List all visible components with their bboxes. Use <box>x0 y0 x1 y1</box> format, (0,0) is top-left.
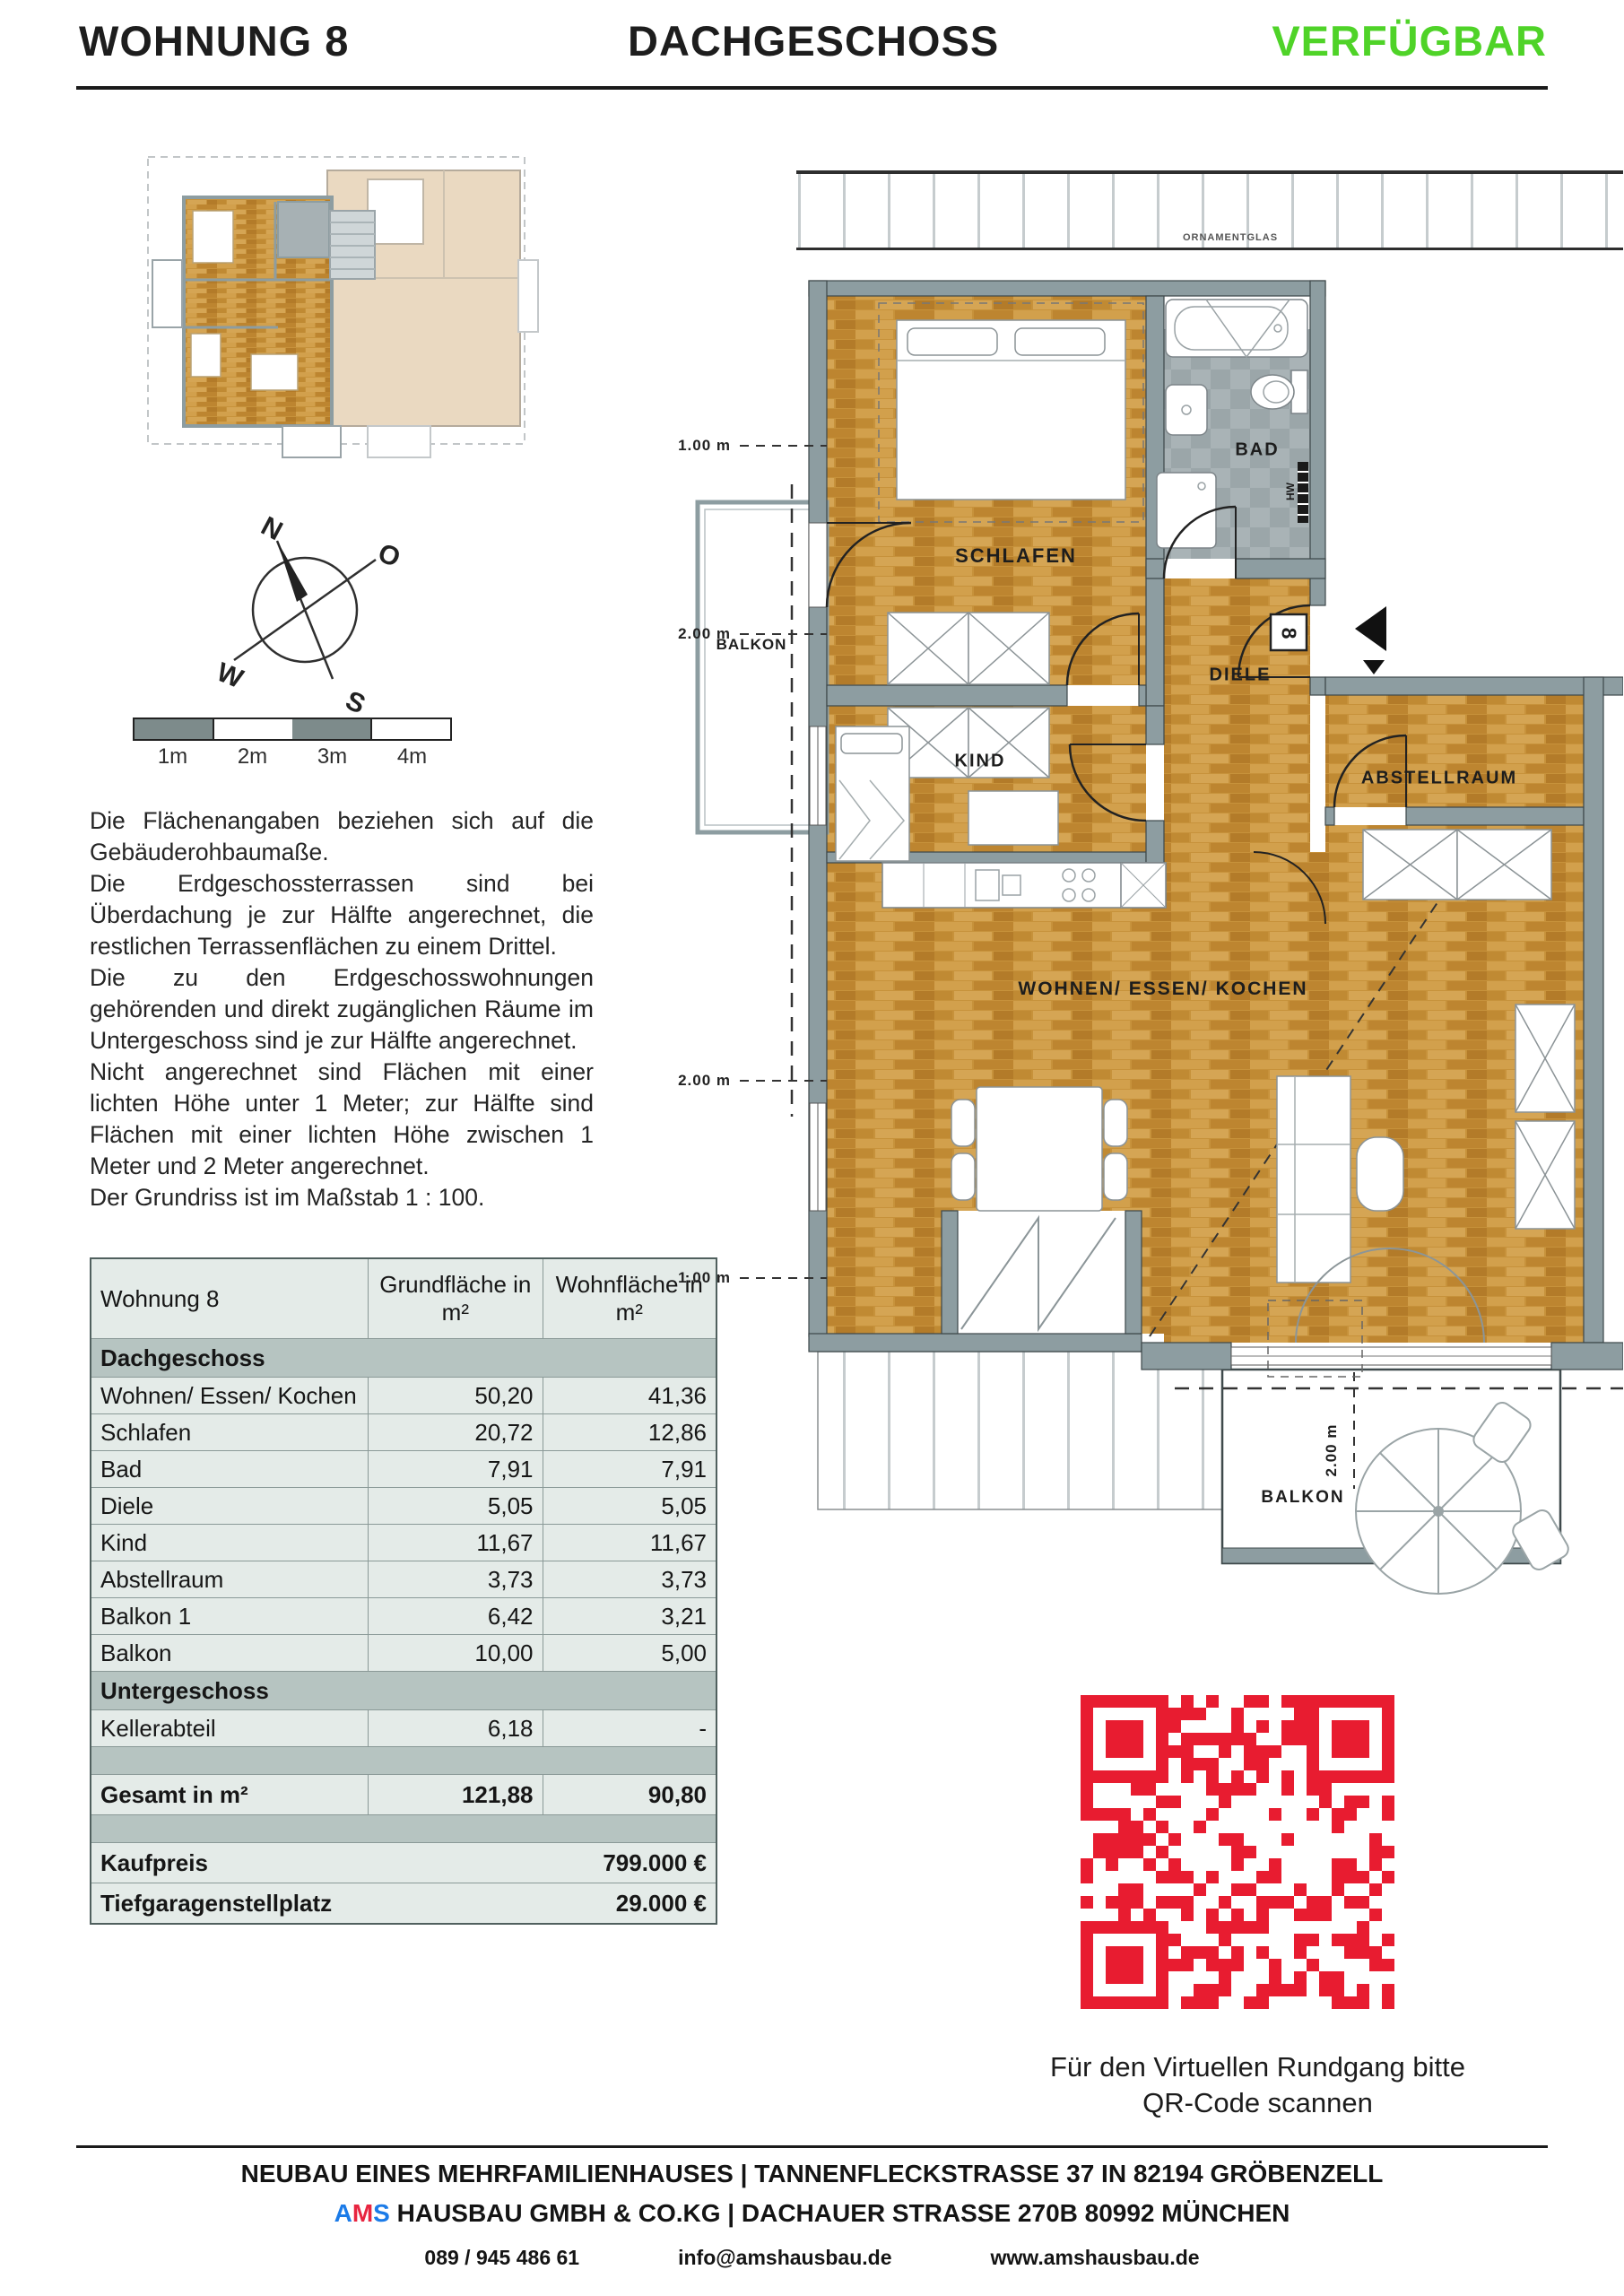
label-hw: HW <box>1284 483 1297 500</box>
dim-1m-bottom: 1.00 m <box>678 1269 731 1287</box>
brochure-page: WOHNUNG 8 DACHGESCHOSS VERFÜGBAR <box>0 0 1624 2296</box>
price-label: Kaufpreis <box>100 1849 208 1877</box>
compass-drawing <box>215 498 404 722</box>
footer-project-line: NEUBAU EINES MEHRFAMILIENHAUSES | TANNEN… <box>0 2160 1624 2188</box>
header-divider <box>76 86 1548 90</box>
scale-label-1m: 1m <box>133 744 213 770</box>
kid-desk <box>968 791 1058 845</box>
page-title: WOHNUNG 8 <box>79 16 349 65</box>
dim-2m-top: 2.00 m <box>678 625 731 643</box>
qr-code <box>1081 1695 1403 2018</box>
kitchen-counter <box>882 863 1166 908</box>
footer-company-line: AMS HAUSBAU GMBH & CO.KG | DACHAUER STRA… <box>0 2199 1624 2228</box>
ams-logo-a: A <box>334 2199 352 2227</box>
overview-balcony <box>152 260 182 327</box>
dining-set <box>951 1087 1127 1211</box>
scale-seg-4 <box>370 719 450 739</box>
status-badge: VERFÜGBAR <box>1272 16 1547 65</box>
scale-bar-labels: 1m 2m 3m 4m <box>133 744 452 770</box>
compass-rose: N O W S <box>215 498 404 722</box>
room-label-abstellraum: ABSTELLRAUM <box>1361 769 1517 789</box>
table-header-grundflaeche: Grundfläche in m² <box>369 1258 543 1339</box>
qr-caption: Für den Virtuellen Rundgang bitte QR-Cod… <box>937 2049 1578 2121</box>
kid-bed <box>836 726 909 861</box>
room-label-wohnen: WOHNEN/ ESSEN/ KOCHEN <box>1018 978 1307 1000</box>
table-header-apartment: Wohnung 8 <box>91 1258 369 1339</box>
unit-badge-number: 8 <box>1277 628 1301 639</box>
scale-label-2m: 2m <box>213 744 292 770</box>
label-ornamentglas: ORNAMENTGLAS <box>1183 232 1278 243</box>
dim-2m-bottom: 2.00 m <box>678 1072 731 1090</box>
radiator-hw <box>1298 462 1308 523</box>
room-label-schlafen: SCHLAFEN <box>955 544 1077 568</box>
footer-divider <box>76 2145 1548 2148</box>
scale-seg-3 <box>292 719 370 739</box>
overview-plan <box>99 126 547 471</box>
scale-seg-2 <box>213 719 292 739</box>
footer-website: www.amshausbau.de <box>991 2246 1200 2270</box>
qr-caption-line2: QR-Code scannen <box>937 2085 1578 2121</box>
room-label-diele: DIELE <box>1210 665 1272 686</box>
entrance-arrow-icon <box>1355 606 1386 674</box>
dim-2m-balcony: 2.00 m <box>1323 1424 1341 1477</box>
dim-1m-top: 1.00 m <box>678 437 731 455</box>
bathtub <box>1166 300 1307 357</box>
room-label-kind: KIND <box>955 752 1006 772</box>
footer-contact-line: 089 / 945 486 61 info@amshausbau.de www.… <box>0 2246 1624 2270</box>
ams-logo-s: S <box>373 2199 390 2227</box>
footer-phone: 089 / 945 486 61 <box>424 2246 579 2270</box>
scale-label-4m: 4m <box>372 744 452 770</box>
floor-title: DACHGESCHOSS <box>628 16 999 65</box>
overview-unit-8 <box>184 197 332 426</box>
side-table <box>1357 1137 1403 1211</box>
shower <box>1157 473 1216 548</box>
overview-plan-drawing <box>99 126 547 471</box>
room-label-balkon-bottom: BALKON <box>1261 1488 1344 1508</box>
balcony-left-area <box>698 502 827 832</box>
qr-caption-line1: Für den Virtuellen Rundgang bitte <box>937 2049 1578 2085</box>
bathroom-sink <box>1166 385 1207 435</box>
overview-stair-core <box>330 211 375 279</box>
measurement-notes: Die Flächenangaben beziehen sich auf die… <box>90 805 594 1213</box>
room-label-bad: BAD <box>1235 440 1279 461</box>
bed-double <box>897 320 1125 500</box>
compass-needle <box>277 541 308 602</box>
footer-email: info@amshausbau.de <box>678 2246 891 2270</box>
scale-label-3m: 3m <box>292 744 372 770</box>
balcony-door-notch <box>958 1211 1125 1334</box>
garage-label: Tiefgaragenstellplatz <box>100 1890 332 1918</box>
overview-balcony-bottom <box>282 426 341 457</box>
roof-strip-bottom <box>818 1352 1229 1509</box>
scale-bar: 1m 2m 3m 4m <box>133 717 452 771</box>
scale-seg-1 <box>135 719 213 739</box>
ams-logo-m: M <box>352 2199 373 2227</box>
scale-bar-segments <box>133 717 452 741</box>
footer-company-rest: HAUSBAU GMBH & CO.KG | DACHAUER STRASSE … <box>390 2199 1290 2227</box>
